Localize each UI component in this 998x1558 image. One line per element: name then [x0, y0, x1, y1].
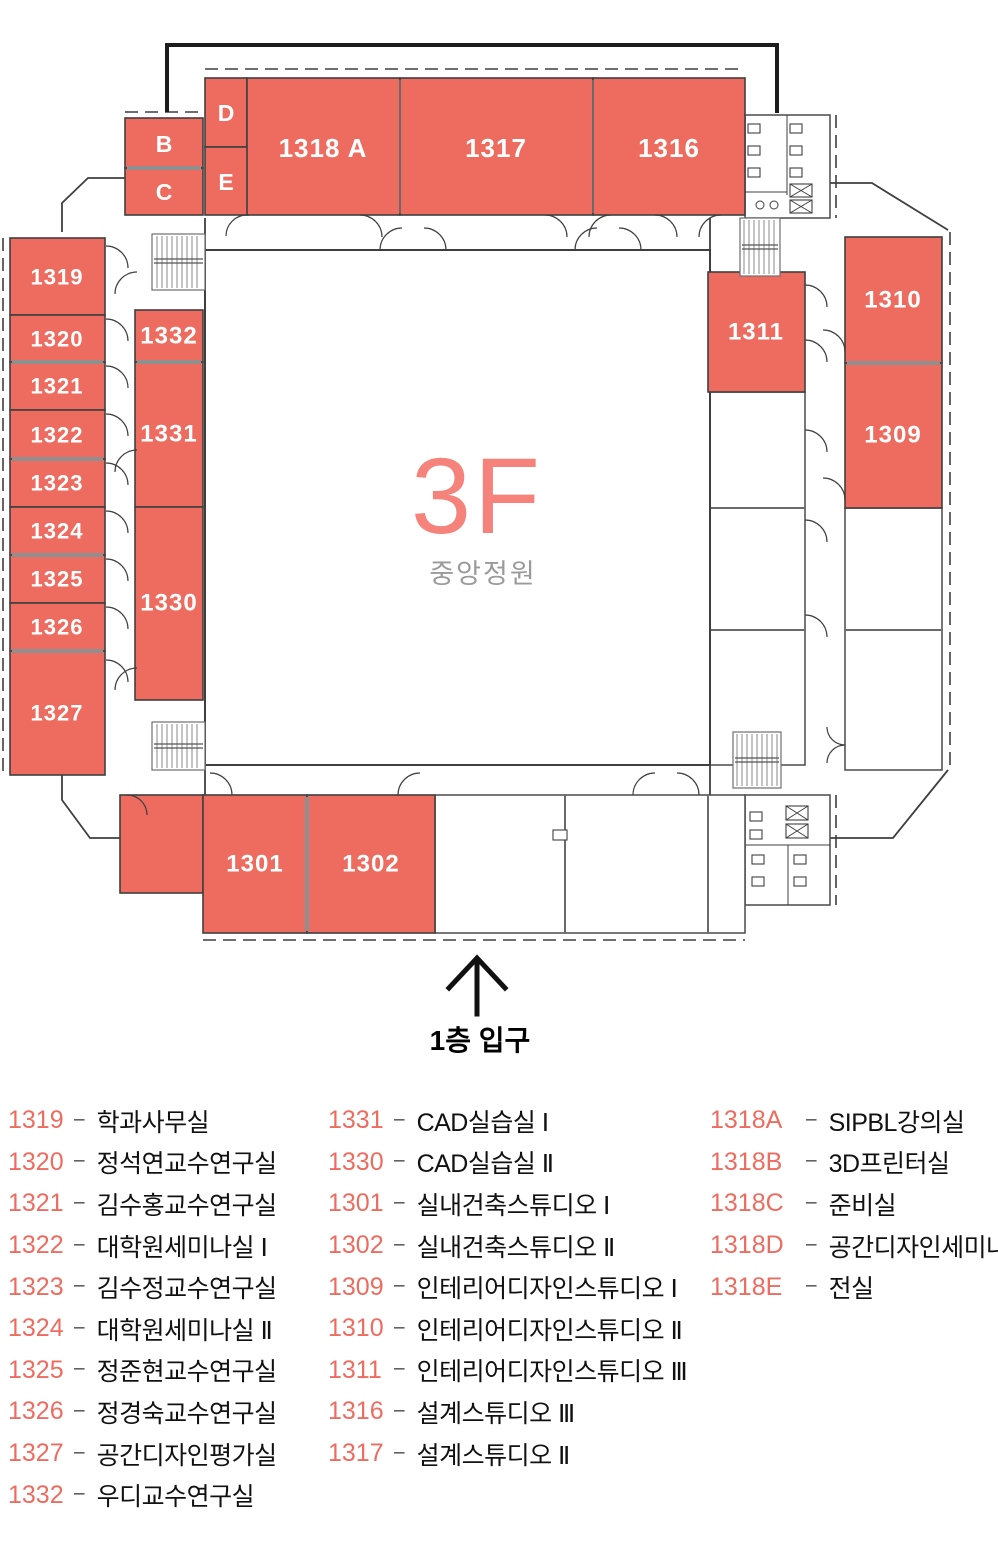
legend-dash: –: [74, 1275, 85, 1297]
room-bottom-left: [120, 795, 203, 893]
room-label-1323: 1323: [31, 471, 84, 496]
legend-item: 1323–김수정교수연구실: [8, 1266, 277, 1308]
room-label-1321: 1321: [31, 374, 84, 399]
legend-dash: –: [74, 1400, 85, 1422]
legend-dash: –: [394, 1234, 405, 1256]
legend-number: 1316: [328, 1397, 390, 1426]
legend-name: 김수정교수연구실: [97, 1269, 277, 1305]
legend-item: 1319–학과사무실: [8, 1100, 277, 1142]
room-label-b: B: [156, 131, 173, 157]
legend-number: 1318B: [710, 1148, 802, 1177]
legend-number: 1322: [8, 1231, 70, 1260]
legend-number: 1323: [8, 1273, 70, 1302]
legend-number: 1320: [8, 1148, 70, 1177]
room-label-1302: 1302: [342, 851, 399, 878]
legend-item: 1318C–준비실: [710, 1183, 998, 1225]
legend-name: 대학원세미나실 Ⅱ: [97, 1311, 273, 1347]
legend-name: 우디교수연구실: [97, 1477, 255, 1513]
legend-name: 학과사무실: [97, 1103, 210, 1139]
legend-dash: –: [806, 1150, 817, 1172]
room-label-1327: 1327: [31, 701, 84, 726]
legend-name: SIPBL강의실: [829, 1103, 965, 1139]
restroom-bottom-right: [745, 795, 830, 905]
room-label-c: C: [156, 179, 173, 205]
legend-item: 1309–인테리어디자인스튜디오 Ⅰ: [328, 1266, 687, 1308]
legend-dash: –: [394, 1192, 405, 1214]
legend-number: 1327: [8, 1439, 70, 1468]
legend-item: 1316–설계스튜디오 Ⅲ: [328, 1391, 687, 1433]
legend-number: 1326: [8, 1397, 70, 1426]
stairs-top-right: [740, 218, 780, 276]
legend-name: 설계스튜디오 Ⅱ: [417, 1436, 570, 1472]
legend-item: 1310–인테리어디자인스튜디오 Ⅱ: [328, 1308, 687, 1350]
legend-name: 정석연교수연구실: [97, 1144, 277, 1180]
legend-dash: –: [74, 1109, 85, 1131]
room-label-1319: 1319: [31, 265, 84, 290]
legend-name: 실내건축스튜디오 Ⅱ: [417, 1228, 615, 1264]
stairs-bottom-right: [733, 732, 781, 788]
legend-name: 전실: [829, 1269, 874, 1305]
legend-name: 김수홍교수연구실: [97, 1186, 277, 1222]
floor-title: 3F: [411, 435, 543, 556]
legend-item: 1320–정석연교수연구실: [8, 1142, 277, 1184]
legend-name: 준비실: [829, 1186, 897, 1222]
legend-dash: –: [394, 1109, 405, 1131]
room-label-1317: 1317: [465, 133, 527, 163]
legend-number: 1310: [328, 1314, 390, 1343]
legend-number: 1318D: [710, 1231, 802, 1260]
legend-number: 1302: [328, 1231, 390, 1260]
legend-item: 1327–공간디자인평가실: [8, 1433, 277, 1475]
legend-name: 설계스튜디오 Ⅲ: [417, 1394, 575, 1430]
room-label-1330: 1330: [140, 590, 197, 617]
legend-name: CAD실습실 Ⅰ: [417, 1103, 549, 1139]
legend-number: 1324: [8, 1314, 70, 1343]
legend-dash: –: [806, 1109, 817, 1131]
legend-name: 대학원세미나실 Ⅰ: [97, 1228, 268, 1264]
entrance-arrow-icon: [449, 958, 505, 1014]
legend-name: 실내건축스튜디오 Ⅰ: [417, 1186, 610, 1222]
legend-name: 공간디자인평가실: [97, 1436, 277, 1472]
room-label-1311: 1311: [728, 319, 784, 346]
legend-number: 1309: [328, 1273, 390, 1302]
stairs-top-left: [152, 234, 205, 290]
legend: 1319–학과사무실 1320–정석연교수연구실 1321–김수홍교수연구실 1…: [0, 1060, 998, 1558]
room-label-1309: 1309: [864, 422, 921, 449]
legend-name: 인테리어디자인스튜디오 Ⅱ: [417, 1311, 683, 1347]
legend-dash: –: [74, 1483, 85, 1505]
room-label-e: E: [218, 169, 233, 195]
legend-name: 정경숙교수연구실: [97, 1394, 277, 1430]
room-label-1326: 1326: [31, 615, 84, 640]
legend-name: 인테리어디자인스튜디오 Ⅲ: [417, 1352, 688, 1388]
legend-dash: –: [74, 1150, 85, 1172]
legend-dash: –: [74, 1192, 85, 1214]
stairs-bottom-left: [152, 722, 205, 770]
legend-item: 1321–김수홍교수연구실: [8, 1183, 277, 1225]
legend-dash: –: [806, 1192, 817, 1214]
room-label-1324: 1324: [31, 519, 84, 544]
legend-dash: –: [394, 1400, 405, 1422]
legend-name: 공간디자인세미나실: [829, 1228, 998, 1264]
room-label-1331: 1331: [140, 421, 197, 448]
rooms-left: [10, 238, 105, 775]
legend-number: 1317: [328, 1439, 390, 1468]
legend-number: 1331: [328, 1106, 390, 1135]
legend-item: 1302–실내건축스튜디오 Ⅱ: [328, 1225, 687, 1267]
legend-name: CAD실습실 Ⅱ: [417, 1144, 554, 1180]
legend-number: 1330: [328, 1148, 390, 1177]
legend-item: 1332–우디교수연구실: [8, 1474, 277, 1516]
legend-dash: –: [394, 1358, 405, 1380]
legend-dash: –: [74, 1442, 85, 1464]
legend-dash: –: [806, 1234, 817, 1256]
room-label-1325: 1325: [31, 567, 84, 592]
legend-number: 1318E: [710, 1273, 802, 1302]
legend-number: 1318C: [710, 1189, 802, 1218]
room-label-1320: 1320: [31, 327, 84, 352]
floor-plan: D E B C 1318 A 1317 1316 1319 1320 1321 …: [0, 0, 998, 1060]
room-label-1316: 1316: [638, 133, 700, 163]
legend-dash: –: [74, 1234, 85, 1256]
legend-item: 1301–실내건축스튜디오 Ⅰ: [328, 1183, 687, 1225]
legend-column-3: 1318A–SIPBL강의실 1318B–3D프린터실 1318C–준비실 13…: [710, 1100, 998, 1308]
legend-number: 1332: [8, 1481, 70, 1510]
legend-item: 1318E–전실: [710, 1266, 998, 1308]
legend-number: 1325: [8, 1356, 70, 1385]
legend-dash: –: [394, 1317, 405, 1339]
legend-dash: –: [74, 1358, 85, 1380]
legend-number: 1301: [328, 1189, 390, 1218]
legend-dash: –: [394, 1442, 405, 1464]
legend-item: 1311–인테리어디자인스튜디오 Ⅲ: [328, 1350, 687, 1392]
legend-number: 1311: [328, 1356, 390, 1385]
legend-number: 1319: [8, 1106, 70, 1135]
legend-dash: –: [394, 1275, 405, 1297]
legend-item: 1326–정경숙교수연구실: [8, 1391, 277, 1433]
legend-name: 인테리어디자인스튜디오 Ⅰ: [417, 1269, 678, 1305]
courtyard-label: 중앙정원: [429, 559, 536, 589]
legend-number: 1321: [8, 1189, 70, 1218]
room-label-d: D: [218, 100, 235, 126]
legend-number: 1318A: [710, 1106, 802, 1135]
legend-item: 1318B–3D프린터실: [710, 1142, 998, 1184]
legend-item: 1318D–공간디자인세미나실: [710, 1225, 998, 1267]
room-label-1310: 1310: [864, 287, 921, 314]
legend-item: 1325–정준현교수연구실: [8, 1350, 277, 1392]
legend-item: 1324–대학원세미나실 Ⅱ: [8, 1308, 277, 1350]
room-label-1322: 1322: [31, 423, 84, 448]
legend-item: 1330–CAD실습실 Ⅱ: [328, 1142, 687, 1184]
room-label-1318a: 1318 A: [279, 133, 368, 163]
legend-column-2: 1331–CAD실습실 Ⅰ 1330–CAD실습실 Ⅱ 1301–실내건축스튜디…: [328, 1100, 687, 1474]
legend-dash: –: [806, 1275, 817, 1297]
legend-name: 3D프린터실: [829, 1144, 950, 1180]
legend-column-1: 1319–학과사무실 1320–정석연교수연구실 1321–김수홍교수연구실 1…: [8, 1100, 277, 1516]
legend-item: 1318A–SIPBL강의실: [710, 1100, 998, 1142]
legend-item: 1331–CAD실습실 Ⅰ: [328, 1100, 687, 1142]
room-label-1332: 1332: [140, 323, 197, 350]
room-label-1301: 1301: [226, 851, 283, 878]
legend-name: 정준현교수연구실: [97, 1352, 277, 1388]
legend-item: 1317–설계스튜디오 Ⅱ: [328, 1433, 687, 1475]
entrance-label: 1층 입구: [430, 1025, 531, 1056]
legend-dash: –: [74, 1317, 85, 1339]
legend-dash: –: [394, 1150, 405, 1172]
legend-item: 1322–대학원세미나실 Ⅰ: [8, 1225, 277, 1267]
rooms-inner-left: [135, 310, 203, 700]
restroom-top-right: [745, 115, 830, 218]
